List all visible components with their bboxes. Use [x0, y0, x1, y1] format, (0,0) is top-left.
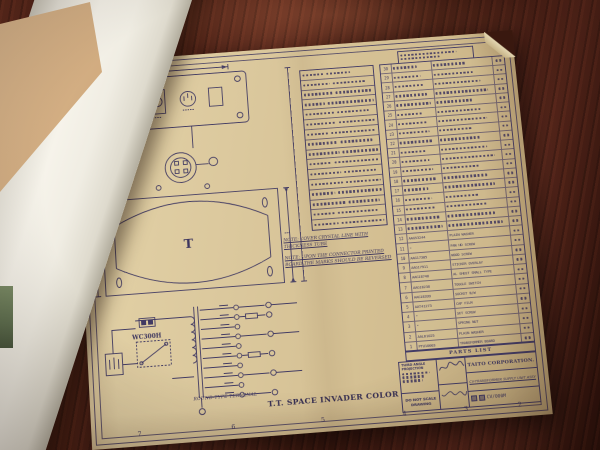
illegible-text — [395, 93, 427, 98]
illegible-text — [501, 106, 506, 109]
illegible-text — [497, 69, 502, 72]
parts-row-no: 21 — [388, 148, 400, 157]
parts-row-qty — [516, 284, 529, 294]
illegible-text — [446, 202, 487, 207]
green-mat-sliver — [0, 286, 13, 348]
illegible-text — [310, 171, 341, 176]
illegible-text — [303, 82, 330, 86]
parts-row-qty — [493, 65, 505, 74]
parts-row-qty — [510, 226, 523, 236]
parts-row-qty — [511, 235, 524, 245]
parts-row-no: 28 — [382, 83, 394, 92]
parts-row-no: 20 — [389, 158, 401, 167]
illegible-text — [393, 66, 417, 70]
illegible-text — [444, 174, 488, 180]
illegible-text — [434, 71, 473, 76]
illegible-text — [518, 268, 523, 271]
parts-row-qty — [498, 112, 510, 121]
illegible-text — [499, 87, 504, 90]
illegible-text — [508, 172, 513, 175]
illegible-text — [304, 92, 333, 96]
illegible-text — [314, 212, 336, 216]
parts-row-no: 18 — [390, 177, 402, 186]
corner-fold — [484, 30, 515, 59]
illegible-text — [408, 225, 444, 230]
wc300h-label: WC300H — [131, 333, 162, 341]
illegible-text — [401, 159, 429, 163]
projection-cell: THIRD ANGLE PROJECTION — [399, 360, 438, 394]
illegible-text — [513, 219, 518, 222]
illegible-text — [308, 141, 338, 145]
parts-row-no: 5 — [402, 302, 415, 312]
illegible-text — [438, 117, 487, 123]
illegible-text — [397, 112, 423, 116]
parts-row-no: 15 — [393, 205, 405, 215]
parts-row-no: 10 — [397, 254, 409, 264]
illegible-text — [343, 148, 378, 153]
illegible-text — [348, 199, 379, 204]
illegible-text — [342, 219, 385, 224]
illegible-text — [441, 145, 488, 151]
illegible-text — [302, 73, 323, 77]
illegible-text — [440, 136, 480, 141]
illegible-text — [433, 62, 466, 67]
illegible-text — [333, 80, 366, 85]
illegible-text — [394, 75, 420, 79]
parts-row-qty — [513, 254, 526, 264]
parts-row-no: 13 — [395, 225, 407, 235]
illegible-text — [399, 130, 430, 135]
parts-row-no: 26 — [383, 102, 395, 111]
illegible-text — [505, 143, 510, 146]
zone-number: 2 — [517, 402, 522, 409]
illegible-text — [398, 121, 427, 125]
illegible-text — [496, 59, 501, 62]
illegible-text — [331, 128, 376, 134]
parts-row-qty — [504, 168, 516, 177]
parts-row-no: 27 — [383, 92, 395, 101]
illegible-text — [337, 109, 370, 114]
zone-number: 3 — [464, 406, 469, 413]
illegible-text — [338, 188, 382, 194]
parts-row-no: 4 — [403, 312, 416, 322]
illegible-text — [446, 193, 480, 198]
parts-row-no: 14 — [394, 215, 406, 225]
parts-row-no: 23 — [386, 130, 398, 139]
no-scale-cell: DO NOT SCALE DRAWING — [402, 391, 440, 412]
illegible-text — [344, 169, 375, 174]
signature-scribble — [436, 358, 466, 385]
photo-scene: T — [0, 0, 600, 450]
parts-row-qty — [502, 149, 514, 158]
parts-row-qty — [505, 178, 517, 187]
illegible-text — [514, 229, 519, 232]
parts-row-no: 7 — [400, 283, 413, 293]
illegible-text — [436, 99, 472, 104]
illegible-text — [336, 89, 373, 94]
parts-row-qty — [508, 206, 521, 216]
illegible-text — [341, 139, 373, 144]
illegible-text — [504, 134, 509, 137]
illegible-text — [509, 181, 514, 184]
illegible-text — [305, 112, 333, 116]
illegible-text — [312, 192, 335, 196]
illegible-text — [335, 158, 380, 164]
parts-row-qty — [499, 121, 511, 130]
zone-number: 7 — [137, 431, 141, 438]
illegible-text — [435, 88, 487, 94]
parts-row-qty — [518, 303, 531, 313]
illegible-text — [327, 99, 373, 105]
illegible-text — [396, 102, 431, 107]
illegible-text — [519, 277, 525, 280]
parts-row-no: 25 — [384, 111, 396, 120]
illegible-text — [406, 206, 436, 211]
parts-row-qty — [503, 159, 515, 168]
parts-row-qty — [515, 274, 528, 284]
illegible-text — [405, 197, 432, 201]
parts-row-no: 11 — [396, 244, 408, 254]
parts-row-no: 2 — [404, 332, 417, 342]
illegible-text — [502, 115, 507, 118]
projection-label: THIRD ANGLE PROJECTION — [401, 362, 425, 372]
illegible-text — [442, 154, 495, 160]
illegible-text — [401, 150, 426, 154]
illegible-text — [402, 168, 433, 173]
transformer-t-label: T — [183, 236, 194, 251]
parts-row-qty — [520, 323, 533, 333]
parts-row-no: 30 — [380, 64, 392, 73]
illegible-text — [498, 78, 503, 81]
parts-row-qty — [497, 102, 509, 111]
illegible-text — [305, 102, 325, 106]
drawing-number: CV/000M — [487, 394, 507, 400]
parts-row-qty — [496, 93, 508, 102]
illegible-text — [403, 177, 436, 182]
illegible-text — [309, 151, 340, 156]
illegible-text — [521, 297, 527, 300]
illegible-text — [503, 124, 508, 127]
parts-row-qty — [509, 216, 522, 226]
parts-row-no: 17 — [391, 186, 403, 195]
illegible-text — [338, 209, 378, 214]
illegible-text — [522, 307, 528, 310]
signature-column — [436, 358, 469, 409]
illegible-text — [447, 211, 495, 217]
zone-number: 6 — [231, 424, 235, 431]
illegible-text — [512, 210, 517, 213]
parts-row-no: 3 — [403, 322, 416, 332]
parts-row-no: 8 — [399, 273, 412, 283]
illegible-text — [339, 118, 375, 123]
illegible-text — [346, 178, 381, 183]
parts-row-no: 16 — [392, 196, 404, 206]
illegible-text — [307, 132, 328, 136]
illegible-text — [437, 108, 480, 113]
illegible-text — [314, 222, 339, 226]
illegible-text — [517, 258, 522, 261]
parts-row-qty — [495, 84, 507, 93]
illegible-text — [525, 336, 531, 339]
illegible-text — [400, 140, 434, 145]
illegible-text — [394, 84, 423, 88]
illegible-text — [510, 191, 515, 194]
stamp-box — [479, 395, 486, 401]
illegible-text — [506, 153, 511, 156]
wiring-mini-table — [299, 65, 388, 231]
parts-row-no: 9 — [398, 263, 411, 273]
parts-row-qty — [506, 187, 518, 196]
illegible-text — [448, 221, 502, 227]
illegible-text — [311, 181, 343, 186]
parts-row-qty — [501, 140, 513, 149]
illegible-text — [511, 200, 516, 203]
illegible-text — [507, 162, 512, 165]
illegible-text — [445, 183, 495, 189]
signature-scribble — [439, 383, 469, 409]
illegible-text — [309, 162, 331, 166]
parts-row-no: 6 — [401, 293, 414, 303]
zone-number: 5 — [321, 417, 325, 424]
parts-row-qty — [519, 313, 532, 323]
illegible-text — [500, 96, 505, 99]
parts-row-no: 22 — [387, 139, 399, 148]
parts-row-qty — [514, 264, 527, 274]
zone-number: 4 — [402, 411, 407, 418]
illegible-text — [516, 248, 521, 251]
parts-row-qty — [500, 130, 512, 139]
parts-row-qty — [494, 75, 506, 84]
note-line: NOTE: UPON THE CONNECTOR PRINTED BOARD T… — [285, 248, 395, 269]
illegible-text — [306, 121, 336, 125]
parts-row-no: 19 — [389, 167, 401, 176]
illegible-text — [313, 201, 346, 206]
illegible-text — [435, 80, 481, 86]
illegible-text — [443, 165, 480, 170]
illegible-text — [407, 216, 440, 221]
parts-row-no: 29 — [381, 74, 393, 83]
illegible-text — [524, 326, 530, 329]
illegible-text — [439, 127, 473, 132]
parts-row-qty — [517, 293, 530, 303]
parts-row-no: 24 — [385, 120, 397, 129]
illegible-text — [326, 71, 350, 75]
illegible-text — [520, 287, 526, 290]
illegible-text — [523, 317, 529, 320]
parts-row-qty — [507, 197, 520, 207]
parts-row-qty — [512, 245, 525, 255]
illegible-text — [515, 239, 520, 242]
stamp-box — [471, 395, 478, 401]
illegible-text — [404, 188, 429, 192]
parts-row-no: 12 — [395, 234, 407, 244]
